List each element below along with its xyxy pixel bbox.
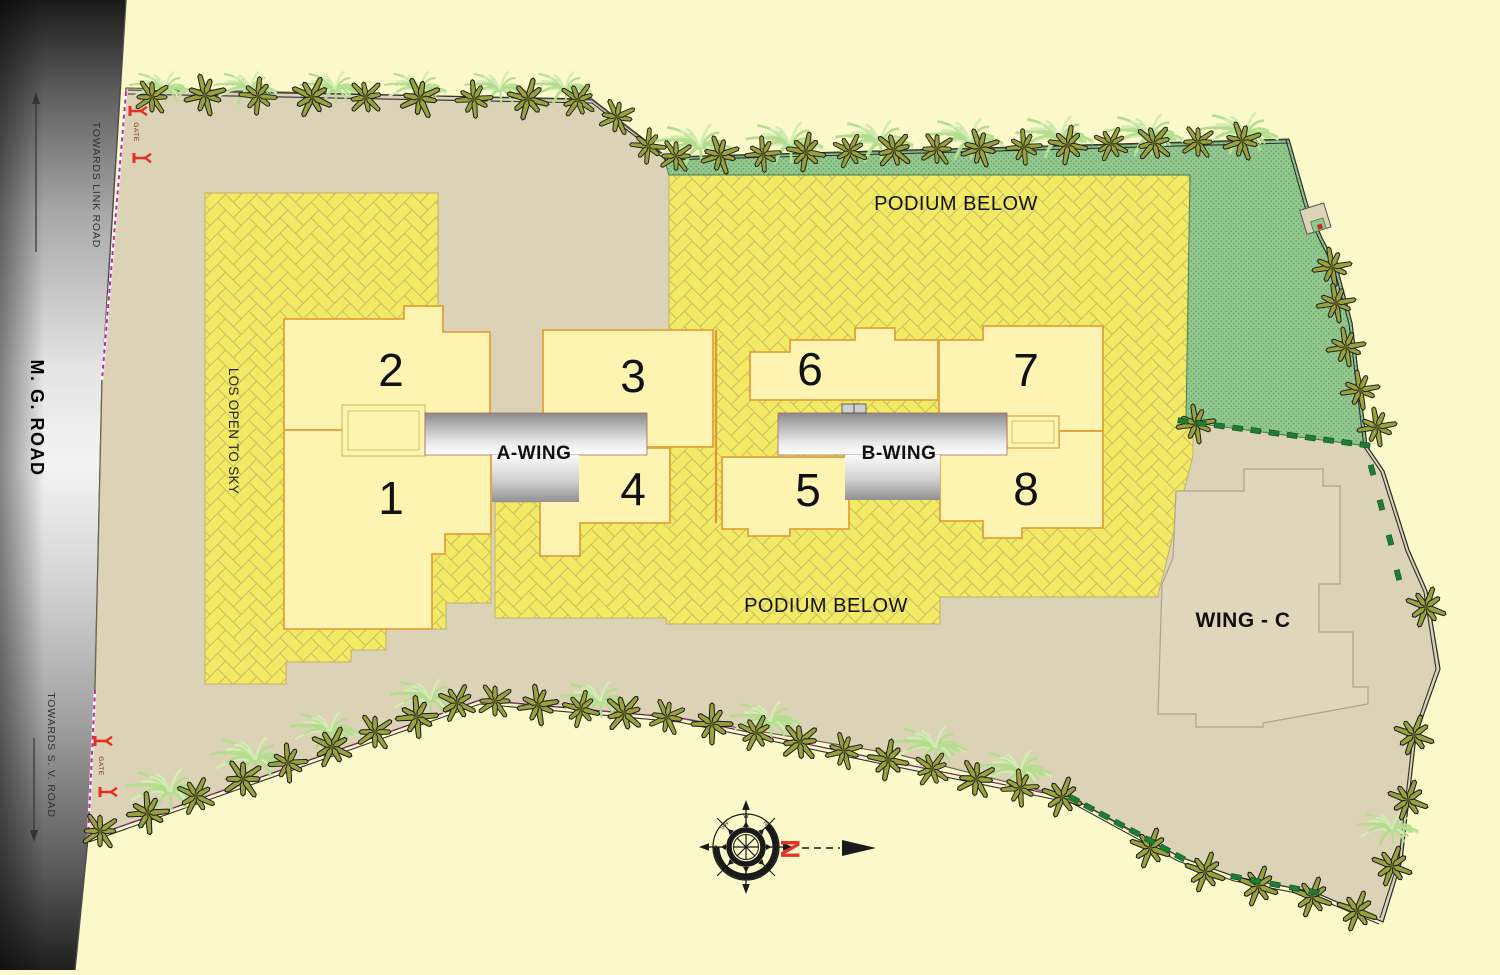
svg-text:LOS OPEN TO SKY: LOS OPEN TO SKY xyxy=(226,368,241,494)
svg-text:GATE: GATE xyxy=(97,756,104,776)
svg-text:GATE: GATE xyxy=(132,122,139,142)
svg-text:E: E xyxy=(744,874,748,880)
svg-text:W: W xyxy=(743,814,749,820)
svg-text:6: 6 xyxy=(797,343,823,395)
svg-text:TOWARDS LINK ROAD: TOWARDS LINK ROAD xyxy=(90,122,102,248)
svg-text:PODIUM BELOW: PODIUM BELOW xyxy=(874,193,1038,215)
svg-text:M. G. ROAD: M. G. ROAD xyxy=(27,360,47,477)
svg-text:S: S xyxy=(713,845,719,849)
svg-text:A-WING: A-WING xyxy=(497,443,572,464)
svg-text:PODIUM BELOW: PODIUM BELOW xyxy=(744,595,908,617)
svg-text:7: 7 xyxy=(1013,344,1039,396)
svg-text:8: 8 xyxy=(1013,463,1039,515)
svg-text:5: 5 xyxy=(795,464,821,516)
svg-text:TOWARDS S. V. ROAD: TOWARDS S. V. ROAD xyxy=(45,692,57,817)
svg-text:1: 1 xyxy=(378,472,404,524)
svg-text:2: 2 xyxy=(378,344,404,396)
svg-text:3: 3 xyxy=(620,350,646,402)
svg-text:WING - C: WING - C xyxy=(1196,609,1291,632)
svg-text:B-WING: B-WING xyxy=(862,443,937,464)
svg-text:N: N xyxy=(775,839,805,859)
svg-text:4: 4 xyxy=(620,463,646,515)
